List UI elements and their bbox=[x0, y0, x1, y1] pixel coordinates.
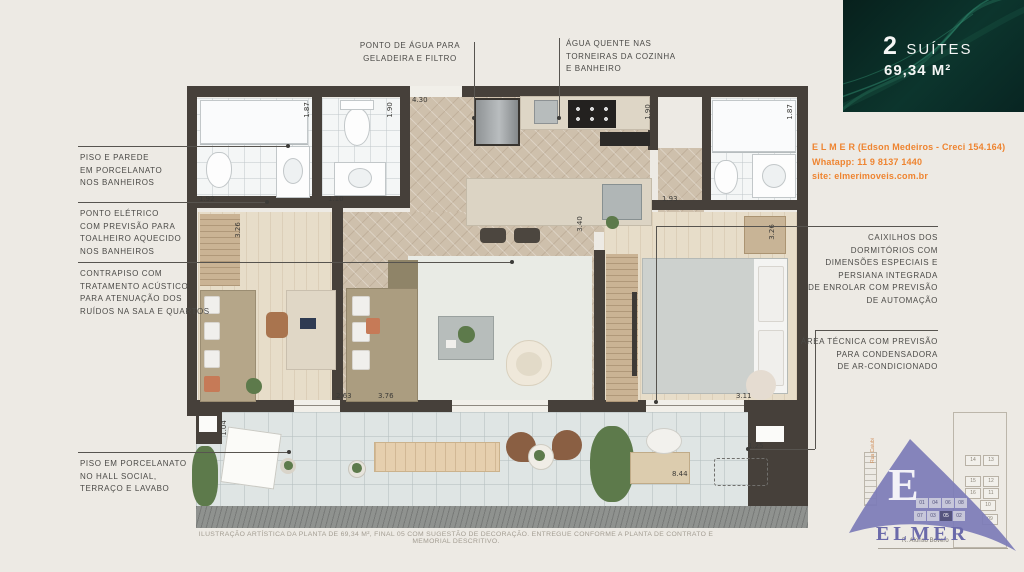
callout-line bbox=[815, 330, 938, 331]
sitemap-unit: 04 bbox=[929, 498, 941, 508]
dim-label: 1.10 bbox=[328, 195, 344, 203]
living-sofa-pillow-terracotta bbox=[366, 318, 380, 334]
coffee-table-tray bbox=[446, 340, 456, 348]
terrace-tall-plant bbox=[590, 426, 634, 502]
suites-badge: 2 SUÍTES 69,34 M² bbox=[843, 0, 1024, 112]
sitemap-unit: 03 bbox=[927, 511, 939, 521]
dim-label: 4.30 bbox=[412, 96, 428, 104]
elmer-wordmark: ELMER bbox=[876, 523, 969, 546]
wall-bath2-kitchen bbox=[400, 86, 410, 198]
dim-label: 3.26 bbox=[234, 218, 242, 242]
callout-dot bbox=[472, 116, 476, 120]
dim-label: 3.11 bbox=[736, 392, 752, 400]
suite1-nightstand bbox=[744, 216, 786, 254]
terrace-small-plant bbox=[352, 463, 362, 473]
sitemap-unit-highlighted: 05 bbox=[940, 511, 952, 521]
lounge-chair bbox=[220, 427, 281, 490]
dim-label: 1.90 bbox=[644, 100, 652, 124]
callout-dot bbox=[265, 200, 269, 204]
sitemap-unit: 08 bbox=[955, 498, 967, 508]
suite2-desk bbox=[286, 290, 336, 370]
sitemap-unit: 06 bbox=[942, 498, 954, 508]
island-sink bbox=[602, 184, 642, 220]
badge-suites-count: 2 bbox=[883, 32, 897, 60]
dim-label: 1.87 bbox=[303, 98, 311, 122]
street-label-side: Rua Caiubi bbox=[870, 438, 876, 463]
terrace-desk bbox=[630, 452, 690, 484]
contact-broker: E L M E R (Edson Medeiros - Creci 154.16… bbox=[812, 140, 1005, 155]
callout-ponto-agua: PONTO DE ÁGUA PARA GELADEIRA E FILTRO bbox=[352, 40, 468, 65]
bed-pillow bbox=[758, 266, 784, 322]
badge-area: 69,34 M² bbox=[884, 62, 951, 79]
callout-line bbox=[656, 226, 657, 402]
callout-line bbox=[78, 452, 289, 453]
callout-dot bbox=[557, 116, 561, 120]
contact-website[interactable]: site: elmerimoveis.com.br bbox=[812, 169, 1005, 184]
dim-label: 2.63 bbox=[336, 392, 352, 400]
dining-plant bbox=[534, 450, 545, 461]
bath2-sink bbox=[348, 168, 372, 188]
bath3-sink bbox=[762, 164, 786, 188]
dining-chair-2 bbox=[552, 430, 582, 460]
callout-line bbox=[656, 226, 938, 227]
window-living-frame bbox=[452, 405, 548, 406]
dim-label: 1.90 bbox=[386, 98, 394, 122]
window-suite1-frame bbox=[646, 405, 744, 406]
suite2-plant bbox=[246, 378, 262, 394]
wall-bath3-left bbox=[702, 96, 711, 200]
window-suite2 bbox=[294, 400, 340, 412]
callout-dot bbox=[654, 400, 658, 404]
callout-line bbox=[78, 146, 288, 147]
callout-line bbox=[78, 202, 267, 203]
bath1-toilet bbox=[206, 152, 232, 188]
callout-agua-quente: ÁGUA QUENTE NAS TORNEIRAS DA COZINHA E B… bbox=[566, 38, 676, 76]
terrace-ledge bbox=[196, 506, 808, 528]
armchair-seat bbox=[516, 352, 542, 376]
callout-line bbox=[78, 262, 512, 263]
dim-label: 3.40 bbox=[576, 212, 584, 236]
wall-bath1-bath2 bbox=[312, 86, 322, 198]
wall-top bbox=[196, 86, 808, 97]
disclaimer-text: ILUSTRAÇÃO ARTÍSTICA DA PLANTA DE 69,34 … bbox=[190, 531, 722, 545]
island-stool-2 bbox=[514, 228, 540, 243]
wall-left bbox=[187, 86, 197, 416]
kitchen-dark-cabinet bbox=[600, 132, 650, 146]
callout-contrapiso: CONTRAPISO COM TRATAMENTO ACÚSTICO PARA … bbox=[80, 268, 210, 318]
bath1-sink bbox=[283, 158, 303, 184]
terrace-bench bbox=[374, 442, 500, 472]
cooktop-burners bbox=[572, 104, 612, 124]
logo-sitemap-group: 14 13 15 12 16 11 10 09 E 01 04 06 08 07… bbox=[840, 405, 1024, 565]
suite2-sofa-pillow bbox=[204, 350, 220, 368]
living-sofa-pillow bbox=[352, 296, 370, 316]
sitemap-unit: 02 bbox=[953, 511, 965, 521]
dim-label: 1.93 bbox=[662, 195, 678, 203]
wall-living-suite1 bbox=[594, 250, 605, 406]
sitemap-unit: 01 bbox=[916, 498, 928, 508]
dim-label: 3.76 bbox=[378, 392, 394, 400]
bath3-shower bbox=[712, 100, 796, 152]
sitemap-unit: 07 bbox=[914, 511, 926, 521]
callout-piso-parede: PISO E PAREDE EM PORCELANATO NOS BANHEIR… bbox=[80, 152, 162, 190]
fridge bbox=[474, 98, 520, 146]
callout-piso-hall: PISO EM PORCELANATO NO HALL SOCIAL, TERR… bbox=[80, 458, 187, 496]
terrace-left-box bbox=[199, 416, 217, 432]
living-sofa-pillow bbox=[352, 350, 370, 370]
street-line bbox=[878, 548, 1008, 549]
window-suite2-frame bbox=[294, 405, 340, 406]
terrace-bush-left bbox=[192, 446, 218, 506]
bath2-toilet bbox=[344, 108, 370, 146]
terrace-right-box bbox=[756, 426, 784, 442]
callout-line bbox=[559, 38, 560, 118]
suite2-sofa-pillow bbox=[204, 322, 220, 340]
dim-label: 8.44 bbox=[672, 470, 688, 478]
bath3-shower-glass bbox=[712, 152, 796, 153]
kitchen-sink bbox=[534, 100, 558, 124]
window-living bbox=[452, 400, 548, 412]
coffee-table-plant bbox=[458, 326, 475, 343]
bed-bench bbox=[632, 292, 637, 376]
living-sofa-back bbox=[388, 260, 418, 288]
suite1-plant bbox=[606, 216, 619, 229]
callout-dot bbox=[746, 447, 750, 451]
bath1-shower-glass bbox=[200, 144, 308, 145]
callout-dot bbox=[287, 450, 291, 454]
callout-dot bbox=[286, 144, 290, 148]
callout-area-tecnica: ÁREA TÉCNICA COM PREVISÃO PARA CONDENSAD… bbox=[801, 336, 938, 374]
dim-label: 1.87 bbox=[786, 100, 794, 124]
dim-label: 3.26 bbox=[768, 220, 776, 244]
callout-ponto-eletrico: PONTO ELÉTRICO COM PREVISÃO PARA TOALHEI… bbox=[80, 208, 181, 258]
callout-dot bbox=[510, 260, 514, 264]
contact-block: E L M E R (Edson Medeiros - Creci 154.16… bbox=[812, 140, 1005, 184]
living-rug bbox=[408, 256, 592, 400]
terrace-desk-chair bbox=[646, 428, 682, 454]
area-tecnica-dashed bbox=[714, 458, 768, 486]
suite2-chair bbox=[266, 312, 288, 338]
dim-label: 1.04 bbox=[220, 416, 228, 440]
callout-line bbox=[748, 449, 815, 450]
bath2-toilet-tank bbox=[340, 100, 374, 110]
callout-line bbox=[474, 42, 475, 118]
terrace-side-plant bbox=[284, 461, 293, 470]
bath3-toilet bbox=[714, 160, 738, 194]
window-suite1 bbox=[646, 400, 744, 412]
island-stool-1 bbox=[480, 228, 506, 243]
bath1-shower bbox=[200, 100, 308, 144]
suite2-sofa-pillow-terracotta bbox=[204, 376, 220, 392]
contact-whatsapp[interactable]: Whatapp: 11 9 8137 1440 bbox=[812, 155, 1005, 170]
suite2-laptop bbox=[300, 318, 316, 329]
badge-suites-row: 2 SUÍTES bbox=[883, 32, 973, 61]
elmer-logo-initial: E bbox=[888, 458, 919, 511]
badge-suites-label: SUÍTES bbox=[906, 41, 972, 58]
marketing-floorplan-page: 4.30 1.87 1.90 1.90 1.87 1.92 1.10 1.93 … bbox=[0, 0, 1024, 572]
callout-caixilhos: CAIXILHOS DOS DORMITÓRIOS COM DIMENSÕES … bbox=[808, 232, 938, 307]
